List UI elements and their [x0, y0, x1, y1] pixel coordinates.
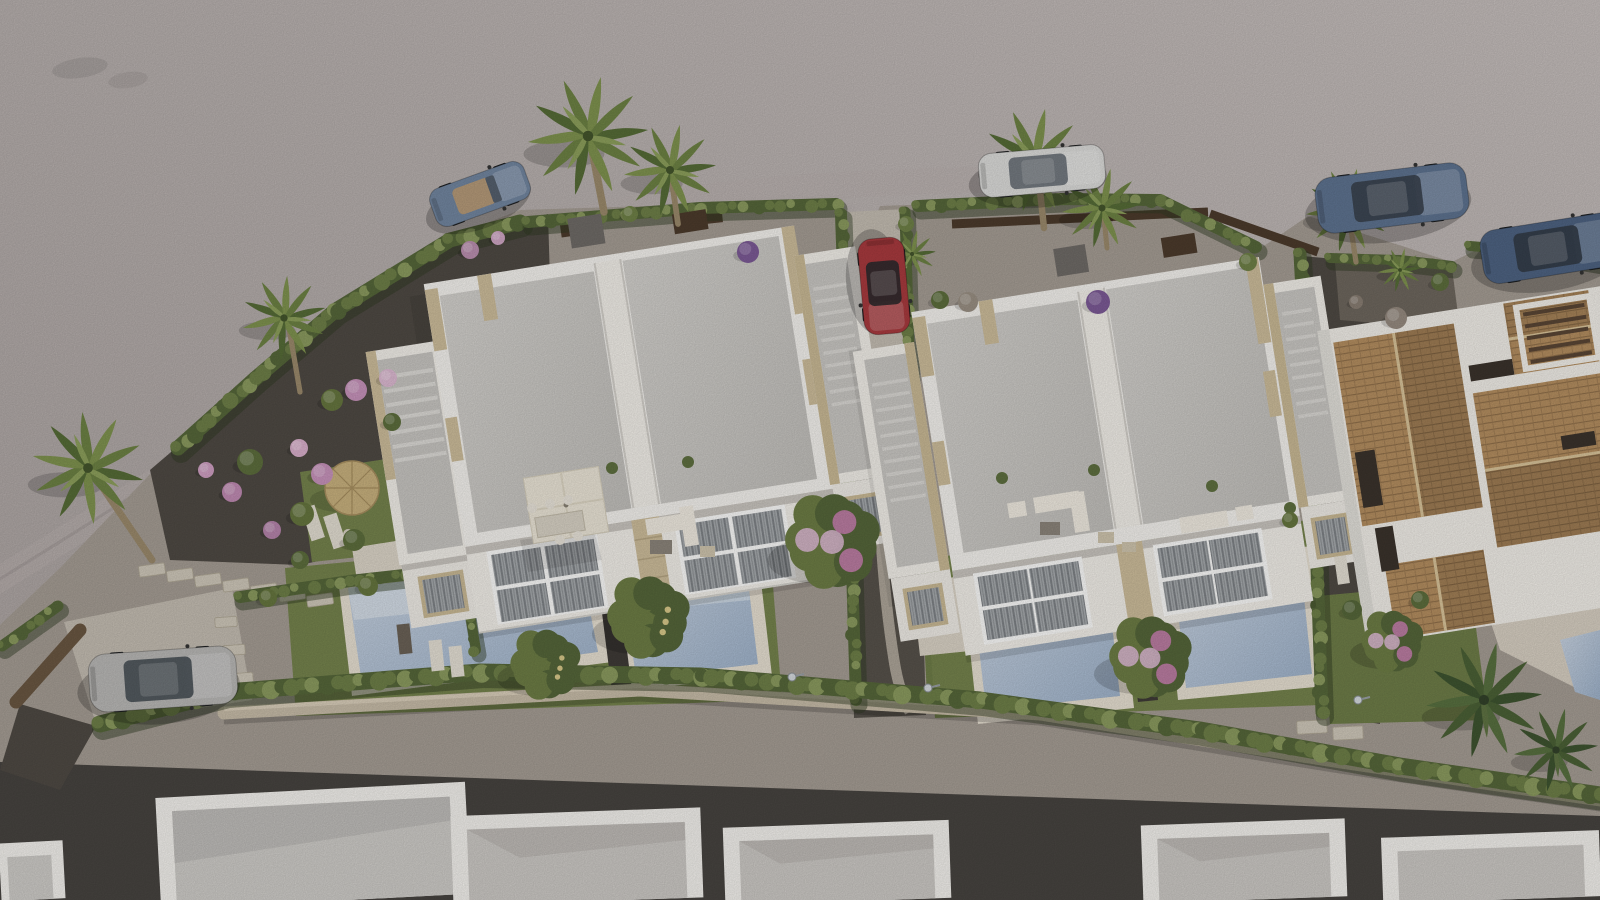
aerial-render-stage	[0, 0, 1600, 900]
aerial-development-render	[0, 0, 1600, 900]
film-grain-overlay	[0, 0, 1600, 900]
